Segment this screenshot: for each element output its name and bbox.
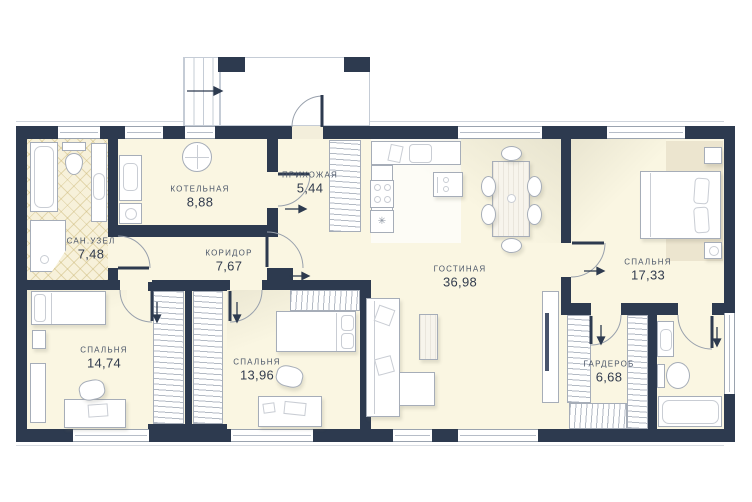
window <box>185 126 215 139</box>
bed-pillow <box>341 315 354 331</box>
dining-chair <box>527 204 542 225</box>
wall-segment <box>27 280 120 290</box>
boiler-unit <box>182 142 212 172</box>
tv-unit <box>542 291 559 403</box>
room-name: СПАЛЬНЯ <box>624 258 672 267</box>
window <box>231 429 313 442</box>
room-label-hall: ПРИХОЖАЯ 5,44 <box>282 171 338 196</box>
dishwasher <box>433 172 463 197</box>
bed-pillow <box>341 333 354 349</box>
appliance-knob <box>443 177 449 183</box>
single-bed <box>31 291 106 325</box>
room-area: 7,48 <box>67 247 116 262</box>
washing-machine <box>119 203 142 224</box>
toilet-tank <box>62 142 86 151</box>
wardrobe-frame-base <box>148 424 227 442</box>
room-label-corridor: КОРИДОР 7,67 <box>205 249 252 274</box>
room-name: ГАРДЕРОБ <box>584 360 635 369</box>
wall-segment <box>561 277 571 305</box>
window <box>607 126 685 139</box>
window <box>724 313 735 394</box>
bed-foot-line <box>650 173 651 237</box>
wall-segment <box>712 303 724 315</box>
toilet-bowl <box>666 362 690 389</box>
room-label-bedroom-right: СПАЛЬНЯ 17,33 <box>624 258 672 283</box>
utility-sink-basin <box>123 163 138 191</box>
wardrobe-column <box>153 291 184 424</box>
kitchen-sink <box>409 144 432 163</box>
wardrobe-frame-divider <box>185 282 192 426</box>
tv-screen <box>545 313 549 371</box>
room-label-wardrobe: ГАРДЕРОБ 6,68 <box>584 360 635 385</box>
dining-chair <box>501 238 522 253</box>
sofa <box>366 298 400 417</box>
dining-chair <box>527 176 542 197</box>
bedroom-wardrobe <box>290 290 360 311</box>
bed-pillow <box>693 207 710 234</box>
window <box>58 126 100 139</box>
sink-basin <box>93 173 105 200</box>
wall-segment <box>215 126 292 139</box>
wall-segment <box>313 429 393 442</box>
room-name: КОТЕЛЬНАЯ <box>170 185 229 194</box>
dining-table <box>492 161 530 237</box>
window <box>393 429 432 442</box>
appliance-handle <box>437 177 438 193</box>
bed-pillow <box>693 178 710 205</box>
room-name: САН.УЗЕЛ <box>67 237 116 246</box>
toilet-tank <box>657 364 665 388</box>
desk-item <box>262 402 275 414</box>
room-name: КОРИДОР <box>205 249 252 258</box>
porch-pillar-right <box>344 57 370 72</box>
wall-segment <box>542 126 607 139</box>
desk <box>64 399 126 428</box>
room-name: ГОСТИНАЯ <box>434 265 487 274</box>
wall-segment <box>16 126 27 442</box>
nightstand <box>704 147 722 164</box>
wall-segment <box>262 280 360 290</box>
entry-threshold <box>292 126 323 139</box>
wardrobe-bottom <box>569 403 627 429</box>
wall-segment <box>724 126 735 313</box>
wall-segment <box>648 315 657 429</box>
laptop <box>283 401 306 416</box>
window <box>125 126 163 139</box>
single-bed <box>276 311 356 352</box>
dining-chair <box>481 204 496 225</box>
wall-segment <box>323 126 458 139</box>
wall-segment <box>561 303 591 315</box>
bathtub <box>30 142 58 212</box>
dining-chair <box>481 176 496 197</box>
window <box>73 429 149 442</box>
wall-segment <box>100 126 125 139</box>
wall-segment <box>621 303 678 315</box>
sofa-pillow <box>374 305 396 327</box>
desk <box>258 396 322 427</box>
room-label-bedroom-left: СПАЛЬНЯ 14,74 <box>80 346 128 371</box>
room-name: СПАЛЬНЯ <box>233 358 281 367</box>
porch-pillar-left <box>218 57 245 72</box>
room-area: 6,68 <box>584 370 635 385</box>
kitchen-counter-top <box>371 141 461 165</box>
sofa-chaise <box>399 372 435 406</box>
burner <box>374 184 381 191</box>
bathtub-basin <box>662 400 719 424</box>
wall-segment <box>724 394 735 442</box>
plant <box>709 246 719 256</box>
laptop <box>88 403 109 417</box>
room-area: 5,44 <box>282 181 338 196</box>
side-table <box>32 330 46 349</box>
porch-stairs <box>183 57 220 126</box>
burner <box>384 196 391 203</box>
bathtub-basin <box>34 146 54 208</box>
wall-segment <box>267 139 278 172</box>
burner <box>374 196 381 203</box>
burner <box>384 184 391 191</box>
room-area: 36,98 <box>434 275 487 290</box>
cabinet <box>30 363 46 423</box>
wall-segment <box>538 429 735 442</box>
room-area: 13,96 <box>233 368 281 383</box>
wall-segment <box>163 126 185 139</box>
window <box>458 126 542 139</box>
eaves-line-left <box>16 121 183 122</box>
bed-line <box>336 313 337 351</box>
appliance-knob <box>443 186 449 192</box>
boiler-cross-v <box>197 145 198 169</box>
sofa-pillow <box>374 355 395 376</box>
room-label-living: ГОСТИНАЯ 36,98 <box>434 265 487 290</box>
room-area: 7,67 <box>205 259 252 274</box>
wall-segment <box>432 429 458 442</box>
bed-pillow <box>34 294 46 322</box>
room-label-boiler: КОТЕЛЬНАЯ 8,88 <box>170 185 229 210</box>
wall-segment <box>108 225 267 237</box>
floor-plan: ✳ <box>0 0 752 502</box>
room-name: СПАЛЬНЯ <box>80 346 128 355</box>
room-area: 14,74 <box>80 356 128 371</box>
coffee-table <box>419 314 438 360</box>
wardrobe-column <box>193 291 223 424</box>
window <box>458 429 538 442</box>
stove <box>370 180 394 208</box>
bed-line <box>51 293 52 324</box>
shower-drain <box>40 255 49 264</box>
nightstand <box>704 242 722 259</box>
cutting-board <box>387 144 403 163</box>
sink-unit <box>657 321 674 357</box>
room-area: 17,33 <box>624 268 672 283</box>
sink-basin <box>660 329 672 351</box>
utility-sink <box>119 155 142 201</box>
room-label-bedroom-middle: СПАЛЬНЯ 13,96 <box>233 358 281 383</box>
table-decor <box>507 194 516 203</box>
wall-segment <box>108 139 118 236</box>
dining-chair <box>501 146 522 161</box>
bathtub <box>658 396 722 427</box>
plinth-line-bottom <box>16 445 724 446</box>
room-name: ПРИХОЖАЯ <box>282 171 338 180</box>
washer-drum <box>125 208 137 220</box>
eaves-line-right <box>370 121 724 122</box>
bathroom-shelf <box>91 143 107 222</box>
double-bed <box>640 171 721 239</box>
room-label-bathroom: САН.УЗЕЛ 7,48 <box>67 237 116 262</box>
wall-doorway-stub <box>267 268 293 280</box>
oven: ✳ <box>370 210 394 233</box>
room-area: 8,88 <box>170 195 229 210</box>
wall-segment <box>267 208 278 237</box>
wall-segment <box>561 139 571 243</box>
